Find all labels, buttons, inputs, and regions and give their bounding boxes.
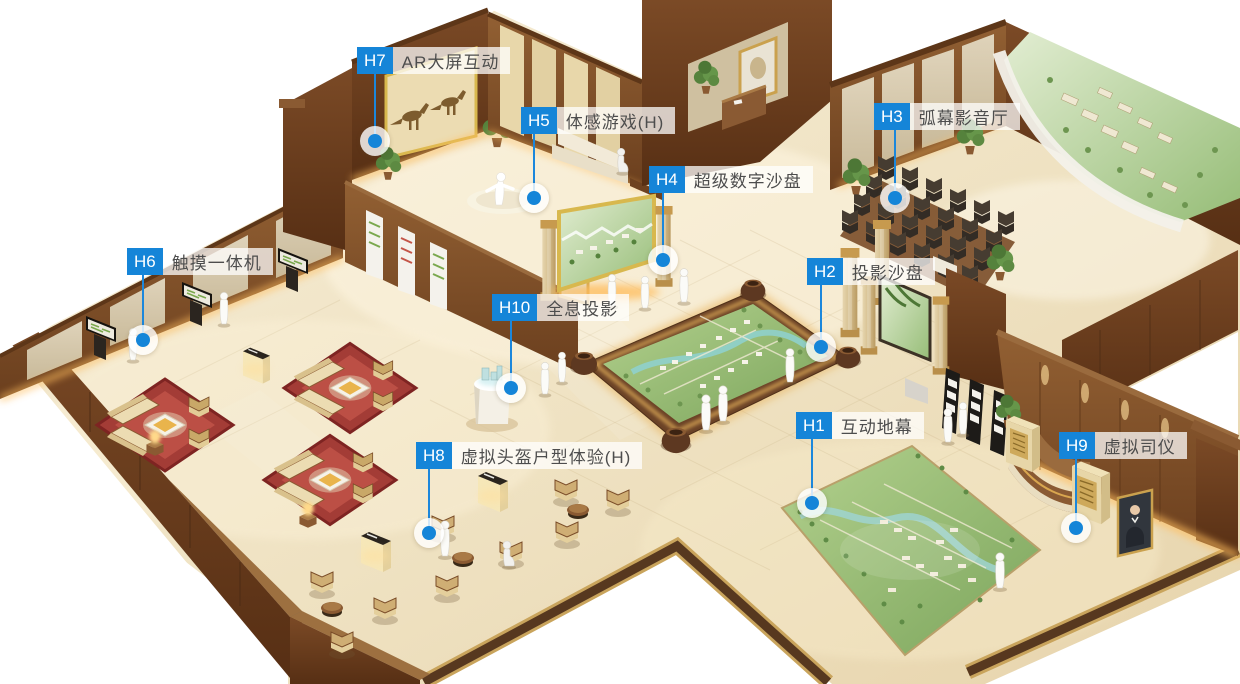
hotspot-h5-code[interactable]: H5 [521, 107, 557, 134]
hotspot-h6-label[interactable]: H6 触摸一体机 [127, 248, 273, 275]
hotspot-h7-code[interactable]: H7 [357, 47, 393, 74]
hotspot-h10-code[interactable]: H10 [492, 294, 537, 321]
hotspot-h9: H9 虚拟司仪 [1059, 432, 1187, 459]
hotspot-h10-text: 全息投影 [537, 294, 629, 321]
hotspot-h4-text: 超级数字沙盘 [685, 166, 813, 193]
hotspot-h2-text: 投影沙盘 [843, 258, 935, 285]
hotspot-h4-dot[interactable] [648, 245, 678, 275]
hotspot-h7-dot[interactable] [360, 126, 390, 156]
hotspot-h4-code[interactable]: H4 [649, 166, 685, 193]
hotspot-h4: H4 超级数字沙盘 [649, 166, 813, 193]
hotspot-h3-text: 弧幕影音厅 [910, 103, 1020, 130]
hotspot-h3-label[interactable]: H3 弧幕影音厅 [874, 103, 1020, 130]
hotspot-h8-dot[interactable] [414, 518, 444, 548]
hotspot-h10-label[interactable]: H10 全息投影 [492, 294, 629, 321]
hotspot-h3: H3 弧幕影音厅 [874, 103, 1020, 130]
hotspot-h3-dot[interactable] [880, 183, 910, 213]
hotspot-h5-dot[interactable] [519, 183, 549, 213]
hotspot-h6-text: 触摸一体机 [163, 248, 273, 275]
virtual-host-screen [1118, 490, 1152, 556]
hotspot-h6: H6 触摸一体机 [127, 248, 273, 275]
hotspot-h7: H7 AR大屏互动 [357, 47, 510, 74]
hotspot-h7-label[interactable]: H7 AR大屏互动 [357, 47, 510, 74]
hotspot-h8-text: 虚拟头盔户型体验(H) [452, 442, 643, 469]
hotspot-h9-code[interactable]: H9 [1059, 432, 1095, 459]
hotspot-h8-code[interactable]: H8 [416, 442, 452, 469]
hotspot-h9-label[interactable]: H9 虚拟司仪 [1059, 432, 1187, 459]
exhibition-hall-map: H1 互动地幕 H2 投影沙盘 H3 弧幕影音厅 H4 超级数字沙盘 H5 体感… [0, 0, 1240, 684]
hotspot-h2-code[interactable]: H2 [807, 258, 843, 285]
hotspot-h5-label[interactable]: H5 体感游戏(H) [521, 107, 675, 134]
hotspot-h1: H1 互动地幕 [796, 412, 924, 439]
hotspot-h6-dot[interactable] [128, 325, 158, 355]
hotspot-h7-text: AR大屏互动 [393, 47, 511, 74]
hotspot-h10-dot[interactable] [496, 373, 526, 403]
hotspot-h8-label[interactable]: H8 虚拟头盔户型体验(H) [416, 442, 642, 469]
hotspot-h2: H2 投影沙盘 [807, 258, 935, 285]
hotspot-h1-text: 互动地幕 [832, 412, 924, 439]
hotspot-h1-label[interactable]: H1 互动地幕 [796, 412, 924, 439]
exhibition-hall-illustration [0, 0, 1240, 684]
hotspot-h1-dot[interactable] [797, 488, 827, 518]
hotspot-h9-dot[interactable] [1061, 513, 1091, 543]
hotspot-h2-dot[interactable] [806, 332, 836, 362]
hotspot-h9-text: 虚拟司仪 [1095, 432, 1187, 459]
hotspot-h6-code[interactable]: H6 [127, 248, 163, 275]
hotspot-h8: H8 虚拟头盔户型体验(H) [416, 442, 642, 469]
hotspot-h10: H10 全息投影 [492, 294, 629, 321]
hotspot-h4-label[interactable]: H4 超级数字沙盘 [649, 166, 813, 193]
hotspot-h1-code[interactable]: H1 [796, 412, 832, 439]
hotspot-h5: H5 体感游戏(H) [521, 107, 675, 134]
hotspot-h2-label[interactable]: H2 投影沙盘 [807, 258, 935, 285]
hotspot-h3-code[interactable]: H3 [874, 103, 910, 130]
hotspot-h5-text: 体感游戏(H) [557, 107, 676, 134]
